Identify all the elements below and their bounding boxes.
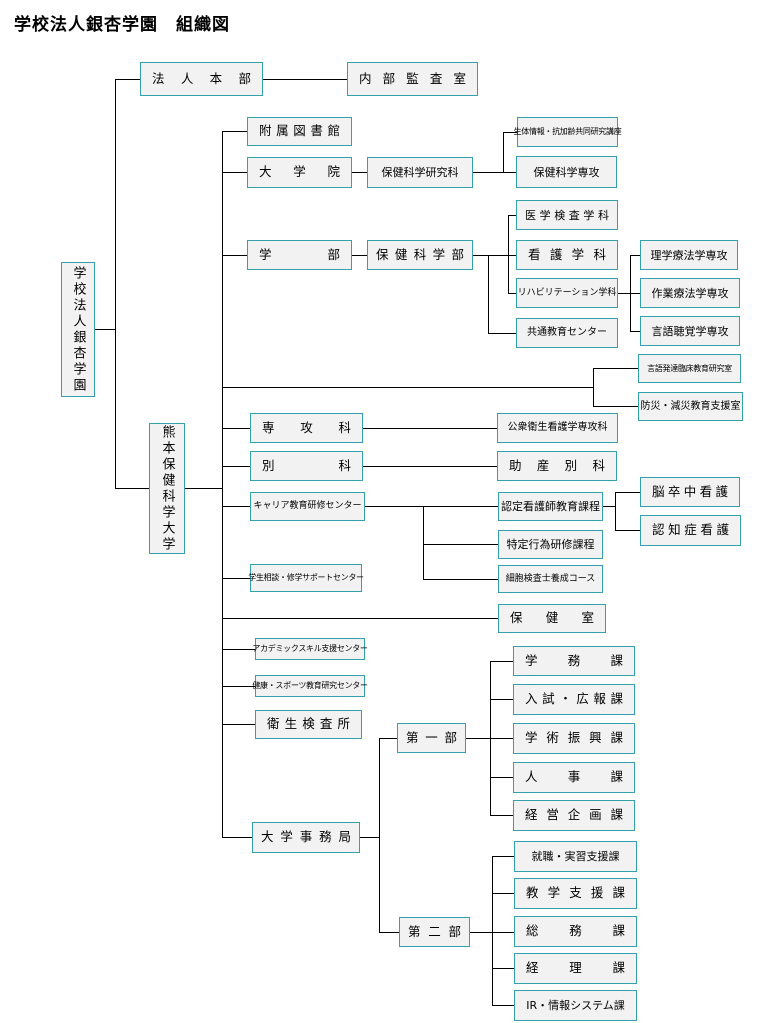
node-ir-joho-system: IR・情報システム課 <box>514 990 637 1021</box>
node-jinjika: 人事課 <box>513 762 635 793</box>
connector <box>379 932 399 933</box>
connector <box>363 466 497 467</box>
node-hokenshitsu: 保健室 <box>498 604 606 633</box>
connector <box>222 255 247 256</box>
node-keirika: 経理課 <box>514 953 637 984</box>
connector <box>503 172 516 173</box>
org-chart: 学校法人銀杏学園 組織図 <box>0 0 766 1023</box>
node-academic-skill: アカデミックスキル支援センター <box>255 638 365 660</box>
connector <box>488 255 489 333</box>
connector <box>492 856 493 1005</box>
connector <box>490 738 513 739</box>
node-dai-nibu: 第二部 <box>399 917 470 947</box>
connector <box>222 686 255 687</box>
node-josan-bekka: 助産別科 <box>497 451 617 481</box>
connector <box>593 368 638 369</box>
connector <box>508 255 516 256</box>
connector <box>222 466 250 467</box>
node-shushoku-jisshu: 就職・実習支援課 <box>514 841 637 872</box>
connector <box>618 293 630 294</box>
connector <box>490 699 513 700</box>
connector <box>630 293 640 294</box>
connector <box>263 79 347 80</box>
node-kumamoto-univ: 熊本保健科学大学 <box>149 423 185 554</box>
connector <box>492 856 514 857</box>
connector <box>95 329 115 330</box>
connector <box>593 406 638 407</box>
node-rehabilitation-gakka: リハビリテーション学科 <box>516 278 618 308</box>
connector <box>222 172 247 173</box>
node-fuzoku-toshokan: 附属図書館 <box>247 117 352 146</box>
connector <box>352 255 367 256</box>
connector <box>466 738 490 739</box>
connector <box>222 428 250 429</box>
node-somuka: 総務課 <box>514 916 637 947</box>
connector <box>490 777 513 778</box>
connector <box>222 724 255 725</box>
node-gakubu: 学部 <box>247 240 352 270</box>
node-bekka: 別科 <box>250 451 363 481</box>
node-naibu-kansashitsu: 内部監査室 <box>347 62 478 96</box>
connector <box>185 488 222 489</box>
connector <box>423 506 498 507</box>
connector <box>488 333 516 334</box>
connector <box>423 579 498 580</box>
node-daigakuin: 大学院 <box>247 157 352 188</box>
page-title: 学校法人銀杏学園 組織図 <box>14 10 230 35</box>
node-bosai-gensai: 防災・減災教育支援室 <box>638 392 743 421</box>
connector <box>492 968 514 969</box>
connector <box>222 506 250 507</box>
connector <box>470 932 492 933</box>
connector <box>360 837 379 838</box>
connector <box>115 79 116 488</box>
node-hoken-kagaku-senkou: 保健科学専攻 <box>516 156 617 188</box>
node-seitai-kouza: 生体情報・抗加齢共同研究講座 <box>517 117 618 147</box>
connector <box>222 131 247 132</box>
connector <box>423 506 424 579</box>
node-nyushi-kohoka: 入試・広報課 <box>513 684 635 715</box>
node-kango-gakka: 看護学科 <box>516 240 618 270</box>
connector <box>630 255 640 256</box>
node-gengo-chokaku: 言語聴覚学専攻 <box>640 316 740 346</box>
node-nintei-kangoshi: 認定看護師教育課程 <box>498 492 603 521</box>
connector <box>473 255 508 256</box>
node-saibo-kensashi: 細胞検査士養成コース <box>498 565 603 593</box>
connector <box>222 837 252 838</box>
connector <box>603 506 615 507</box>
node-kyotsu-kyoiku-center: 共通教育センター <box>516 318 618 348</box>
connector <box>222 387 593 388</box>
node-kyogaku-shienka: 教学支援課 <box>514 878 637 909</box>
node-tokutei-koi: 特定行為研修課程 <box>498 530 603 559</box>
connector <box>115 79 140 80</box>
node-career-center: キャリア教育研修センター <box>250 492 365 521</box>
connector <box>508 215 509 293</box>
connector <box>115 488 149 489</box>
connector <box>423 544 498 545</box>
connector <box>508 215 516 216</box>
connector <box>508 293 516 294</box>
node-ninchisho-kango: 認知症看護 <box>640 515 741 546</box>
connector <box>473 172 503 173</box>
connector <box>222 618 498 619</box>
connector <box>503 132 504 172</box>
connector <box>490 661 513 662</box>
node-hoken-kagakubu: 保健科学部 <box>367 240 473 270</box>
node-keiei-kikakuka: 経営企画課 <box>513 800 635 831</box>
node-daigaku-jimukyoku: 大学事務局 <box>252 822 360 853</box>
connector <box>352 172 367 173</box>
node-nosocchu-kango: 脳卒中看護 <box>640 477 740 507</box>
connector <box>365 506 423 507</box>
connector <box>492 932 514 933</box>
connector <box>363 428 497 429</box>
node-igaku-kensa-gakka: 医学検査学科 <box>516 200 618 230</box>
node-gakusei-sodan: 学生相談・修学サポートセンター <box>250 564 362 592</box>
connector <box>615 530 640 531</box>
connector <box>615 492 640 493</box>
connector <box>222 578 250 579</box>
connector <box>379 738 380 932</box>
node-hoken-kagaku-kenkyuka: 保健科学研究科 <box>367 157 473 188</box>
connector <box>222 649 255 650</box>
node-sagyo-ryoho: 作業療法学専攻 <box>640 278 740 308</box>
node-kenko-sports: 健康・スポーツ教育研究センター <box>255 675 365 697</box>
node-gakumuka: 学務課 <box>513 646 635 676</box>
node-gakkou-houjin: 学校法人銀杏学園 <box>61 262 95 397</box>
node-eisei-kensajo: 衛生検査所 <box>255 710 362 739</box>
node-gengo-hattatsu: 言語発達臨床教育研究室 <box>638 354 741 383</box>
connector <box>630 331 640 332</box>
connector <box>379 738 397 739</box>
node-houjin-honbu: 法人本部 <box>140 62 263 96</box>
connector <box>222 131 223 837</box>
node-senkoka: 専攻科 <box>250 413 363 443</box>
connector <box>492 893 514 894</box>
node-dai-ichibu: 第一部 <box>397 723 466 753</box>
connector <box>615 492 616 530</box>
connector <box>490 815 513 816</box>
node-rigaku-ryoho: 理学療法学専攻 <box>640 240 738 270</box>
connector <box>593 368 594 406</box>
node-gakujutsu-shinkoka: 学術振興課 <box>513 723 635 754</box>
connector <box>492 1005 514 1006</box>
node-koshu-eisei: 公衆衛生看護学専攻科 <box>497 413 618 443</box>
